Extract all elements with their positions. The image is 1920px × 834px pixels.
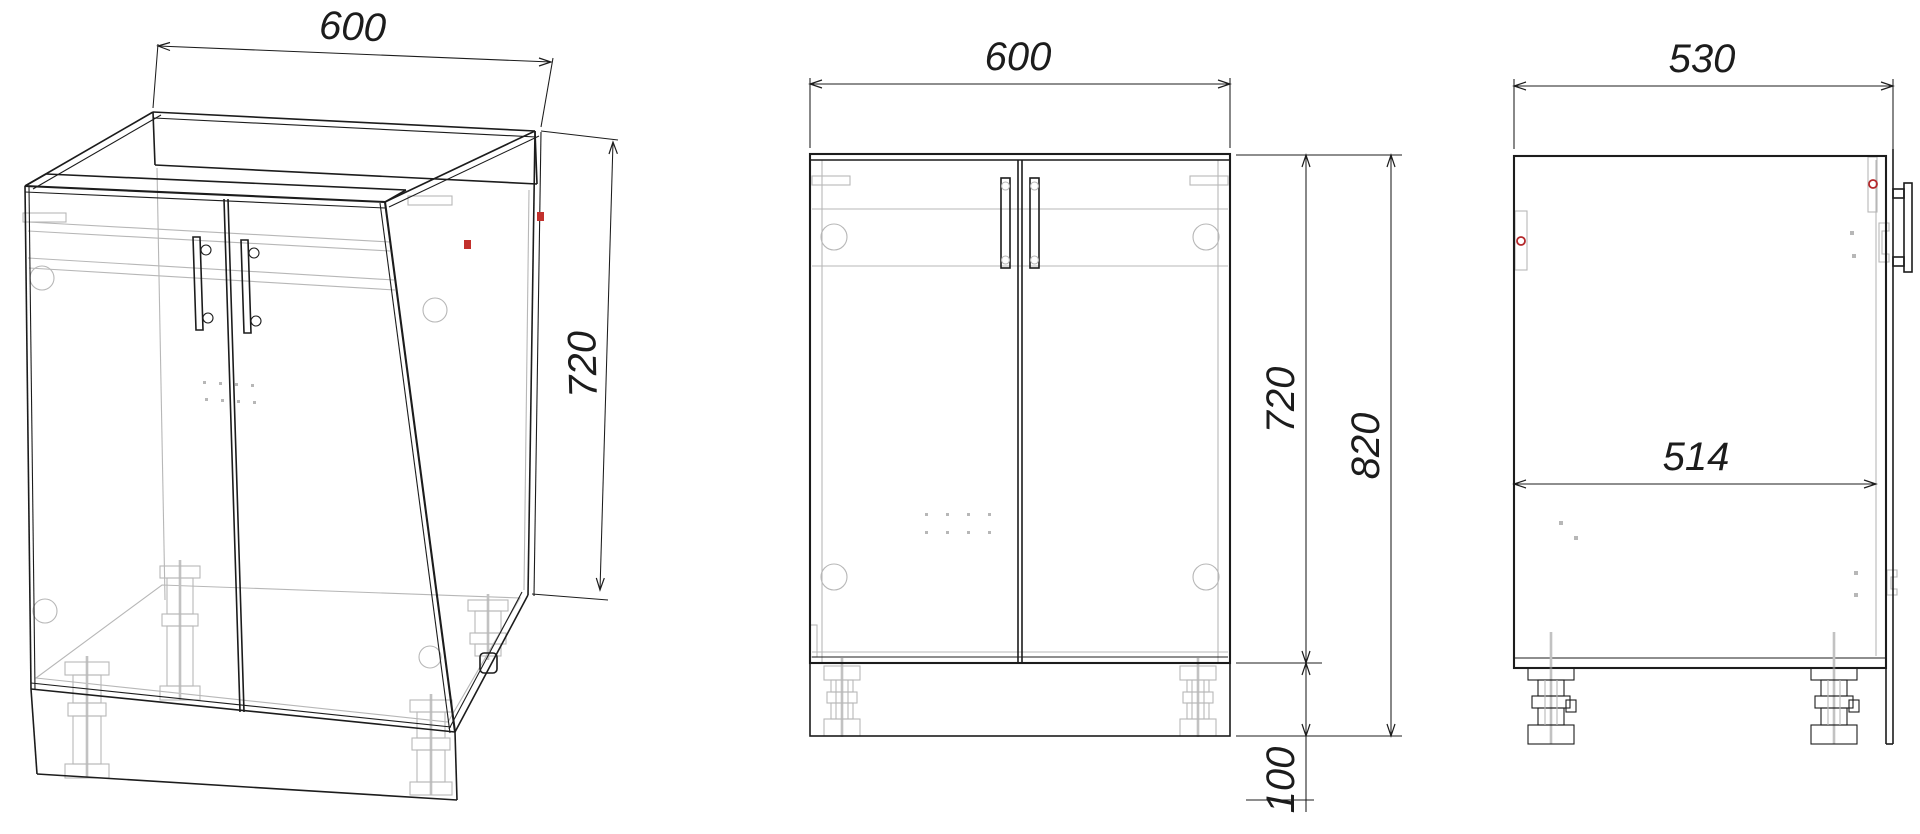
front-width-label: 600 — [985, 35, 1052, 79]
front-leg-left — [824, 658, 860, 737]
isometric-view: 600 720 — [23, 4, 618, 800]
side-dim-depth: 530 — [1514, 37, 1893, 149]
side-hidden-lines — [1515, 157, 1897, 656]
iso-height-label: 720 — [560, 330, 606, 398]
side-hanging-bracket — [1893, 183, 1912, 272]
iso-connector-marks — [464, 212, 544, 249]
iso-dim-height: 720 — [532, 131, 618, 600]
front-dim-plinth-height: 100 — [1259, 663, 1310, 813]
side-dim-inner-depth: 514 — [1514, 435, 1876, 488]
iso-leg-back-left — [160, 560, 200, 700]
front-cabinet-outline — [810, 154, 1230, 736]
front-hinge-plate — [812, 176, 850, 185]
front-plinth — [810, 663, 1230, 736]
side-leg-front — [1528, 632, 1576, 744]
iso-leg-back-right — [468, 594, 508, 660]
front-plinth-height-label: 100 — [1259, 747, 1303, 814]
drawing-sheet: 600 720 — [0, 0, 1920, 834]
front-hinge-cup — [821, 564, 847, 590]
iso-hinge-cup — [419, 646, 441, 668]
side-bracket-hidden — [1879, 223, 1889, 262]
front-hinge-plate — [1190, 176, 1228, 185]
front-hinge-cup — [1193, 564, 1219, 590]
front-dim-body-height: 720 — [1259, 155, 1310, 663]
iso-bottom-panel-hidden — [36, 585, 520, 722]
iso-dim-width: 600 — [153, 4, 553, 127]
front-dim-width: 600 — [810, 35, 1230, 148]
front-hinge-cup — [821, 224, 847, 250]
side-bracket-hidden — [1887, 570, 1897, 595]
front-leg-right — [1180, 658, 1216, 737]
front-hinge-cup — [1193, 224, 1219, 250]
iso-cabinet-outline — [25, 112, 541, 800]
side-depth-label: 530 — [1669, 37, 1736, 81]
iso-hinge-cup — [33, 599, 57, 623]
iso-hidden-lines — [23, 168, 529, 795]
iso-hinge-cup — [30, 266, 54, 290]
side-connector-marks — [1517, 180, 1877, 245]
iso-hinge-cup — [423, 298, 447, 322]
drawing-canvas: 600 720 — [0, 0, 1920, 834]
front-dim-total-height: 820 — [1344, 155, 1395, 736]
side-view: 530 514 — [1514, 37, 1912, 744]
front-door-handles — [1001, 178, 1039, 268]
iso-width-label: 600 — [318, 4, 387, 51]
iso-leg-front-right — [410, 694, 452, 795]
front-shelf-pin-dots — [925, 513, 991, 534]
iso-leg-front-left — [65, 656, 109, 778]
iso-hinge-plate-hidden — [408, 196, 452, 205]
front-cabinet-body — [810, 154, 1230, 663]
front-hidden-lines — [810, 160, 1228, 737]
side-inner-depth-label: 514 — [1663, 435, 1730, 479]
side-cabinet-body — [1514, 156, 1886, 668]
front-view: 600 720 820 100 — [810, 35, 1402, 813]
front-total-height-label: 820 — [1344, 413, 1388, 480]
side-leg-back — [1811, 632, 1859, 744]
front-body-height-label: 720 — [1259, 367, 1303, 434]
